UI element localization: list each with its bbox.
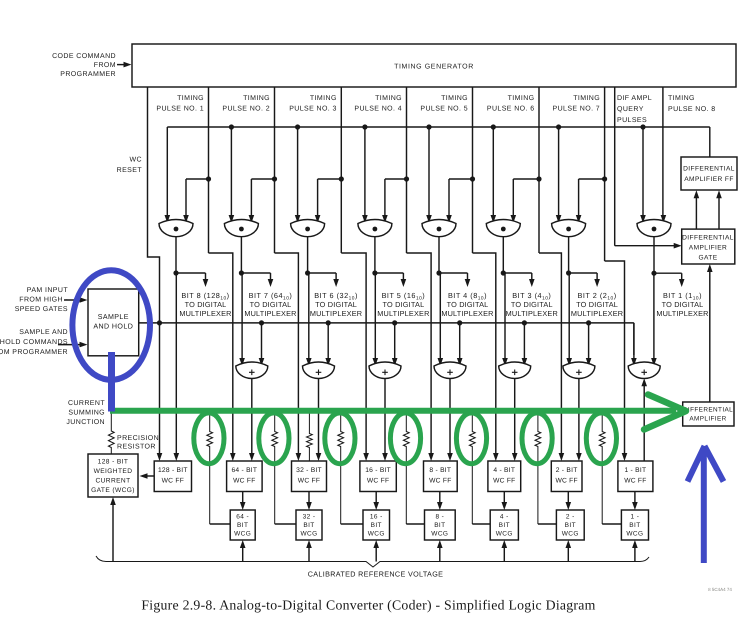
svg-text:TO DIGITAL: TO DIGITAL [382, 300, 424, 309]
svg-text:1 -: 1 - [631, 514, 640, 521]
svg-text:WCG: WCG [626, 531, 643, 538]
svg-text:BIT: BIT [303, 522, 314, 529]
svg-text:WC FF: WC FF [493, 478, 515, 485]
svg-text:128 - BIT: 128 - BIT [158, 467, 188, 474]
svg-text:CURRENT: CURRENT [95, 478, 130, 485]
svg-text:WCG: WCG [300, 531, 317, 538]
svg-text:CALIBRATED REFERENCE VOLTAGE: CALIBRATED REFERENCE VOLTAGE [308, 570, 444, 579]
svg-text:PULSE NO. 7: PULSE NO. 7 [553, 106, 601, 113]
svg-text:8 5C4A4 74: 8 5C4A4 74 [708, 587, 732, 592]
svg-text:PULSE NO. 3: PULSE NO. 3 [289, 106, 337, 113]
svg-text:2 - BIT: 2 - BIT [556, 467, 578, 474]
svg-text:AMPLIFIER FF: AMPLIFIER FF [684, 176, 734, 183]
svg-text:64 - BIT: 64 - BIT [231, 467, 257, 474]
svg-text:WC FF: WC FF [624, 478, 646, 485]
svg-text:MULTIPLEXER: MULTIPLEXER [310, 309, 362, 318]
svg-text:RESET: RESET [117, 167, 143, 174]
svg-text:TO DIGITAL: TO DIGITAL [576, 300, 618, 309]
svg-text:WC FF: WC FF [162, 478, 184, 485]
svg-text:TIMING: TIMING [243, 95, 270, 102]
svg-text:BIT: BIT [237, 522, 248, 529]
svg-text:TO DIGITAL: TO DIGITAL [447, 300, 489, 309]
svg-text:PAM INPUT: PAM INPUT [27, 287, 69, 294]
svg-text:WC FF: WC FF [555, 478, 577, 485]
svg-text:FROM HIGH -: FROM HIGH - [19, 297, 68, 304]
svg-text:WC FF: WC FF [367, 478, 389, 485]
svg-text:WCG: WCG [368, 531, 385, 538]
svg-text:PRECISION: PRECISION [117, 435, 159, 442]
svg-text:DIFFERENTIAL: DIFFERENTIAL [683, 166, 735, 173]
svg-text:MULTIPLEXER: MULTIPLEXER [506, 309, 558, 318]
svg-text:FROM: FROM [94, 62, 116, 69]
svg-text:8 - BIT: 8 - BIT [429, 467, 451, 474]
svg-text:AMPLIFIER: AMPLIFIER [689, 245, 727, 252]
svg-text:TO DIGITAL: TO DIGITAL [315, 300, 357, 309]
svg-text:TO DIGITAL: TO DIGITAL [185, 300, 227, 309]
svg-text:TIMING: TIMING [441, 95, 468, 102]
svg-text:DIFFERENTIAL: DIFFERENTIAL [682, 235, 734, 242]
svg-text:AMPLIFIER: AMPLIFIER [689, 416, 726, 423]
svg-text:WC FF: WC FF [233, 478, 255, 485]
svg-text:PULSE NO. 6: PULSE NO. 6 [487, 106, 535, 113]
svg-text:TIMING: TIMING [310, 95, 337, 102]
svg-text:BIT: BIT [629, 522, 640, 529]
svg-text:1 - BIT: 1 - BIT [624, 467, 646, 474]
svg-text:WC FF: WC FF [298, 478, 320, 485]
svg-text:PULSE NO. 2: PULSE NO. 2 [222, 106, 270, 113]
svg-text:4 - BIT: 4 - BIT [493, 467, 515, 474]
svg-text:2 -: 2 - [566, 514, 575, 521]
svg-text:GATE: GATE [698, 255, 717, 262]
svg-text:DIFFERENTIAL: DIFFERENTIAL [683, 407, 733, 414]
svg-text:Figure 2.9-8. Analog-to-Digit: Figure 2.9-8. Analog-to-Digital Converte… [141, 598, 595, 613]
svg-text:32 -: 32 - [303, 514, 316, 521]
svg-text:BIT: BIT [565, 522, 576, 529]
svg-text:8 -: 8 - [435, 514, 444, 521]
svg-text:TIMING: TIMING [573, 95, 600, 102]
svg-text:MULTIPLEXER: MULTIPLEXER [179, 309, 231, 318]
svg-text:TO DIGITAL: TO DIGITAL [511, 300, 553, 309]
svg-text:CURRENT: CURRENT [68, 400, 105, 407]
svg-text:BIT: BIT [499, 522, 510, 529]
svg-text:PULSES: PULSES [617, 117, 647, 124]
svg-text:DIF AMPL: DIF AMPL [617, 95, 652, 102]
svg-text:PULSE NO. 5: PULSE NO. 5 [420, 106, 468, 113]
svg-text:TO DIGITAL: TO DIGITAL [250, 300, 292, 309]
svg-text:32 - BIT: 32 - BIT [296, 467, 322, 474]
svg-text:WC FF: WC FF [429, 478, 451, 485]
svg-text:HOLD COMMANDS: HOLD COMMANDS [0, 339, 68, 346]
svg-text:MULTIPLEXER: MULTIPLEXER [571, 309, 623, 318]
svg-text:SPEED GATES: SPEED GATES [15, 306, 68, 313]
svg-text:128 - BIT: 128 - BIT [98, 459, 129, 466]
svg-text:BIT: BIT [371, 522, 382, 529]
svg-text:TIMING: TIMING [668, 95, 695, 102]
svg-text:QUERY: QUERY [617, 106, 644, 113]
svg-text:MULTIPLEXER: MULTIPLEXER [377, 309, 429, 318]
svg-text:MULTIPLEXER: MULTIPLEXER [656, 309, 708, 318]
svg-text:CODE COMMAND: CODE COMMAND [52, 53, 116, 60]
svg-text:TIMING: TIMING [177, 95, 204, 102]
svg-text:TO DIGITAL: TO DIGITAL [662, 300, 704, 309]
svg-text:WC: WC [130, 157, 142, 164]
svg-text:FROM PROGRAMMER: FROM PROGRAMMER [0, 349, 68, 356]
svg-text:TIMING GENERATOR: TIMING GENERATOR [394, 64, 474, 71]
svg-text:RESISTOR: RESISTOR [117, 444, 156, 451]
svg-text:WEIGHTED: WEIGHTED [94, 468, 133, 475]
svg-text:PULSE NO. 1: PULSE NO. 1 [156, 106, 204, 113]
svg-text:AND HOLD: AND HOLD [93, 323, 133, 331]
svg-text:PULSE NO. 4: PULSE NO. 4 [354, 106, 402, 113]
svg-text:MULTIPLEXER: MULTIPLEXER [441, 309, 493, 318]
svg-text:SAMPLE: SAMPLE [98, 313, 129, 321]
svg-text:16 -: 16 - [370, 514, 383, 521]
svg-text:BIT: BIT [434, 522, 445, 529]
svg-text:WCG: WCG [234, 531, 251, 538]
svg-text:PULSE NO. 8: PULSE NO. 8 [668, 106, 716, 113]
svg-text:PROGRAMMER: PROGRAMMER [60, 71, 116, 78]
svg-text:MULTIPLEXER: MULTIPLEXER [244, 309, 296, 318]
svg-text:WCG: WCG [431, 531, 448, 538]
svg-text:64 -: 64 - [236, 514, 249, 521]
svg-text:16 - BIT: 16 - BIT [365, 467, 391, 474]
svg-text:GATE (WCG): GATE (WCG) [91, 487, 135, 494]
svg-text:SUMMING: SUMMING [68, 410, 105, 417]
svg-text:WCG: WCG [496, 531, 513, 538]
svg-text:TIMING: TIMING [375, 95, 402, 102]
svg-text:WCG: WCG [562, 531, 579, 538]
svg-text:4 -: 4 - [500, 514, 509, 521]
svg-text:SAMPLE AND: SAMPLE AND [19, 329, 68, 336]
svg-text:JUNCTION: JUNCTION [66, 419, 105, 426]
svg-text:TIMING: TIMING [508, 95, 535, 102]
